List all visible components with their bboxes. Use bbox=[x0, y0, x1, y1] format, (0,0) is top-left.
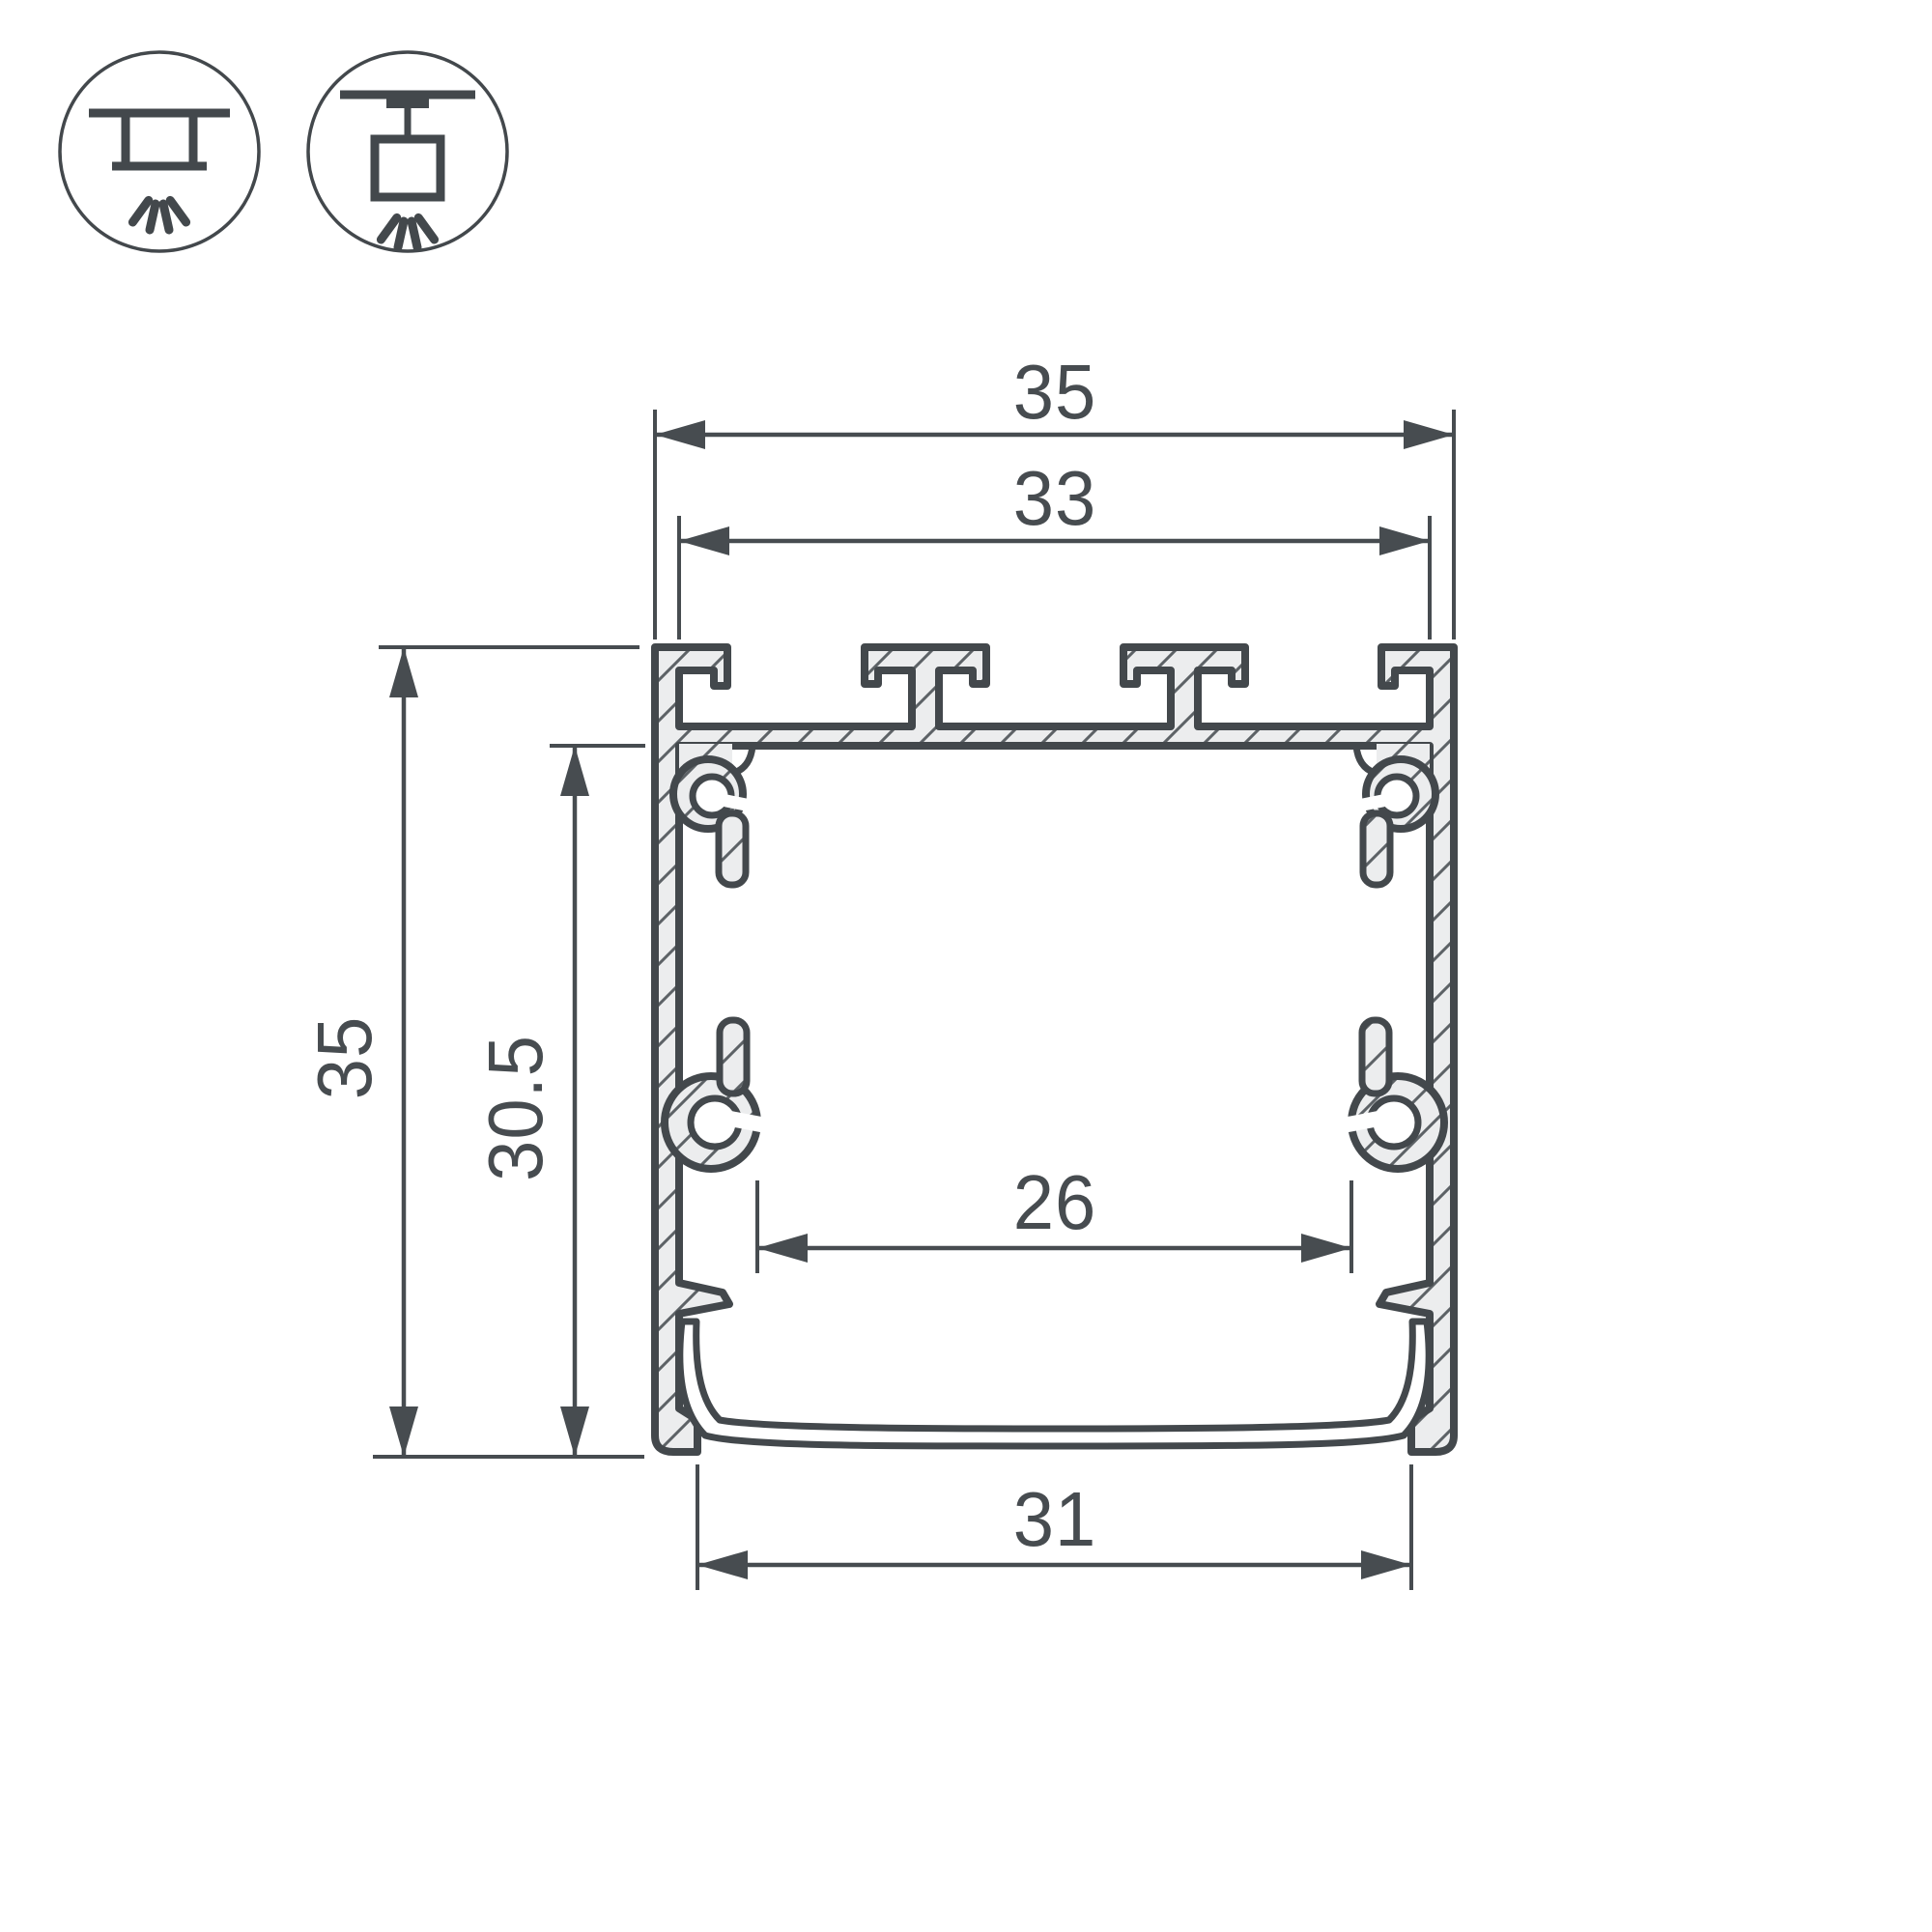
dim-label-outer-height: 35 bbox=[300, 1016, 387, 1099]
mount-icons bbox=[60, 52, 507, 251]
dim-inner-height: 30.5 bbox=[471, 746, 645, 1457]
technical-drawing-page: 35 33 35 bbox=[0, 0, 1932, 1932]
diffuser-cover bbox=[680, 1321, 1429, 1446]
arrowhead bbox=[1379, 526, 1430, 555]
mount-plate bbox=[386, 95, 429, 108]
icon-circle bbox=[60, 52, 259, 251]
arrowhead bbox=[560, 1406, 589, 1457]
retainer-finger bbox=[1363, 813, 1390, 885]
arrowhead bbox=[655, 420, 705, 449]
arrowhead bbox=[389, 647, 418, 697]
dim-label-plate-width: 33 bbox=[1013, 454, 1096, 541]
dim-label-inner-height: 30.5 bbox=[471, 1035, 558, 1181]
surface-mount-icon bbox=[308, 52, 507, 251]
dim-label-bottom-width: 31 bbox=[1013, 1475, 1096, 1562]
arrowhead bbox=[697, 1550, 748, 1579]
arrowhead bbox=[679, 526, 729, 555]
light-rays bbox=[132, 200, 185, 230]
profile-body bbox=[655, 647, 1454, 1452]
light-rays bbox=[381, 217, 434, 247]
retainer-finger bbox=[720, 1020, 747, 1094]
recessed-profile-shape bbox=[112, 109, 207, 166]
dimensions: 35 33 35 bbox=[300, 348, 1454, 1590]
recessed-mount-icon bbox=[60, 52, 259, 251]
arrowhead bbox=[560, 746, 589, 796]
profile-drawing-canvas: 35 33 35 bbox=[0, 0, 1932, 1932]
arrowhead bbox=[1361, 1550, 1411, 1579]
dim-bottom-width: 31 bbox=[697, 1464, 1411, 1590]
arrowhead bbox=[757, 1234, 808, 1263]
dim-label-inner-width: 26 bbox=[1013, 1158, 1096, 1245]
retainer-finger bbox=[719, 813, 746, 885]
dim-plate-width: 33 bbox=[679, 454, 1430, 639]
arrowhead bbox=[389, 1406, 418, 1457]
arrowhead bbox=[1404, 420, 1454, 449]
surface-profile-shape bbox=[375, 139, 440, 197]
retainer-finger bbox=[1362, 1020, 1389, 1094]
arrowhead bbox=[1301, 1234, 1351, 1263]
profile-cross-section bbox=[655, 647, 1454, 1452]
dim-inner-width: 26 bbox=[757, 1158, 1351, 1273]
boss-slits bbox=[726, 801, 1382, 1126]
dim-label-outer-width: 35 bbox=[1013, 348, 1096, 435]
